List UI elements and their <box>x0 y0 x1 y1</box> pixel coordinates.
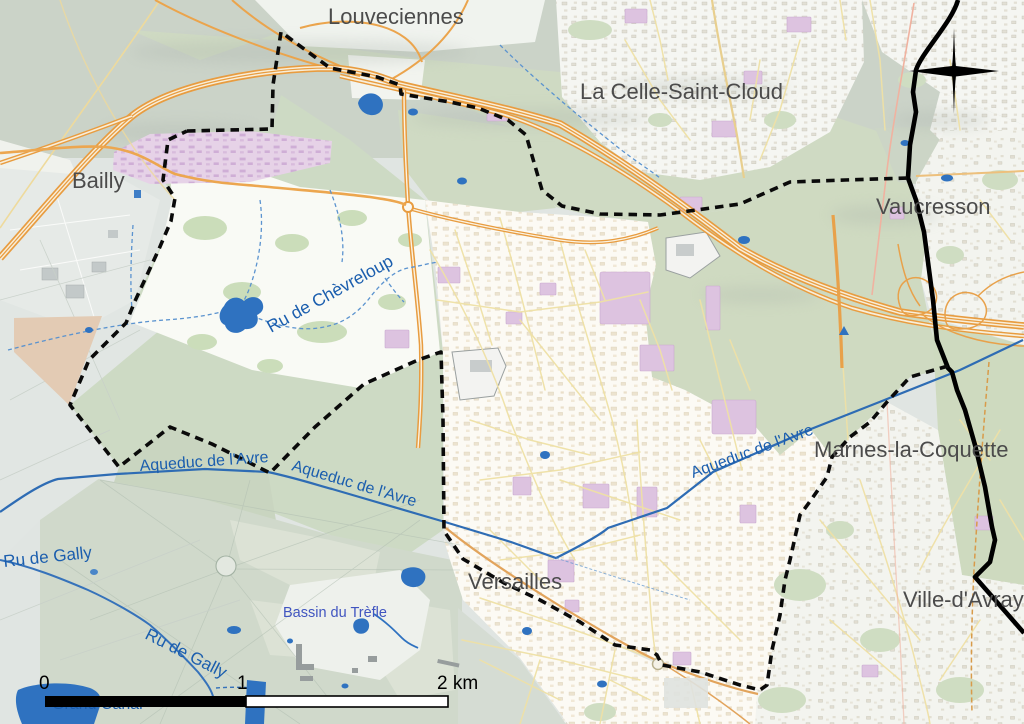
svg-text:1: 1 <box>237 673 248 694</box>
svg-text:Ville-d'Avray: Ville-d'Avray <box>903 587 1024 612</box>
svg-text:Versailles: Versailles <box>468 569 562 594</box>
svg-text:Louveciennes: Louveciennes <box>328 4 464 29</box>
svg-text:2 km: 2 km <box>437 673 478 694</box>
svg-text:Bailly: Bailly <box>72 168 125 193</box>
svg-text:0: 0 <box>39 673 50 694</box>
svg-text:Vaucresson: Vaucresson <box>876 194 991 219</box>
svg-text:La Celle-Saint-Cloud: La Celle-Saint-Cloud <box>580 79 783 104</box>
svg-text:Bassin du Trèfle: Bassin du Trèfle <box>283 605 387 621</box>
svg-text:Marnes-la-Coquette: Marnes-la-Coquette <box>814 437 1008 462</box>
